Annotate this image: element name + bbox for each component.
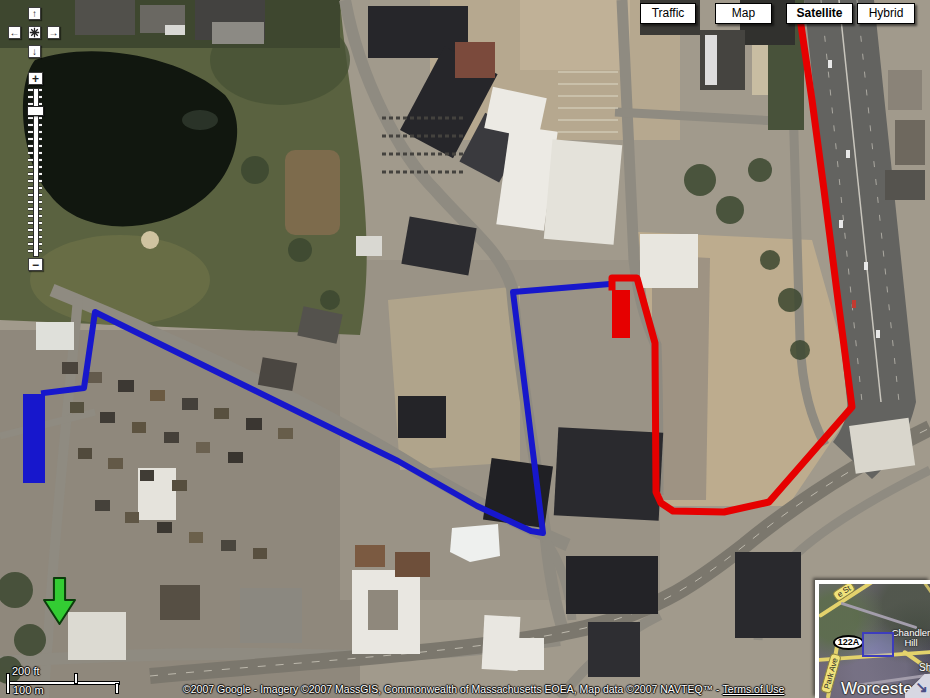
route-122a-shield: 122A [833, 635, 864, 650]
plus-icon: + [32, 72, 39, 86]
pan-right-button[interactable]: → [47, 26, 60, 39]
overview-map-imagery[interactable]: e St Park Ave 122A Chandler Hill Sh Worc… [819, 584, 930, 698]
chandler-hill-label: Chandler Hill [889, 628, 930, 648]
center-result-button[interactable] [28, 26, 41, 39]
arrow-up-icon: ↑ [32, 8, 37, 19]
arrow-down-icon: ↓ [32, 46, 37, 57]
partial-place-label: Sh [919, 662, 930, 673]
map-type-map-button[interactable]: Map [715, 3, 772, 24]
arrow-right-icon: → [49, 27, 59, 38]
map-type-satellite-button[interactable]: Satellite [786, 3, 853, 24]
map-canvas[interactable]: ↑ ← → ↓ + − Traffic Map Satellite Hybrid… [0, 0, 930, 698]
satellite-imagery [0, 0, 930, 698]
overview-collapse-button[interactable]: ↘ [905, 674, 930, 698]
overview-map[interactable]: e St Park Ave 122A Chandler Hill Sh Worc… [815, 580, 930, 698]
pan-up-button[interactable]: ↑ [28, 7, 41, 20]
collapse-arrow-icon: ↘ [915, 678, 928, 695]
map-type-traffic-button[interactable]: Traffic [640, 3, 696, 24]
pan-left-button[interactable]: ← [8, 26, 21, 39]
attribution: ©2007 Google - Imagery ©2007 MassGIS, Co… [183, 683, 823, 695]
zoom-in-button[interactable]: + [28, 72, 43, 85]
scale-meters-label: 100 m [13, 684, 44, 696]
scale-feet-label: 200 ft [12, 665, 40, 677]
copyright-text: ©2007 Google - Imagery ©2007 MassGIS, Co… [183, 683, 720, 695]
pan-down-button[interactable]: ↓ [28, 45, 41, 58]
overview-viewport-box[interactable] [862, 632, 894, 657]
map-type-hybrid-button[interactable]: Hybrid [857, 3, 915, 24]
terms-of-use-link[interactable]: Terms of Use [723, 683, 785, 695]
zoom-out-button[interactable]: − [28, 258, 43, 271]
minus-icon: − [32, 258, 39, 272]
center-result-icon [29, 27, 40, 38]
arrow-left-icon: ← [10, 27, 20, 38]
zoom-slider-handle[interactable] [27, 106, 44, 116]
